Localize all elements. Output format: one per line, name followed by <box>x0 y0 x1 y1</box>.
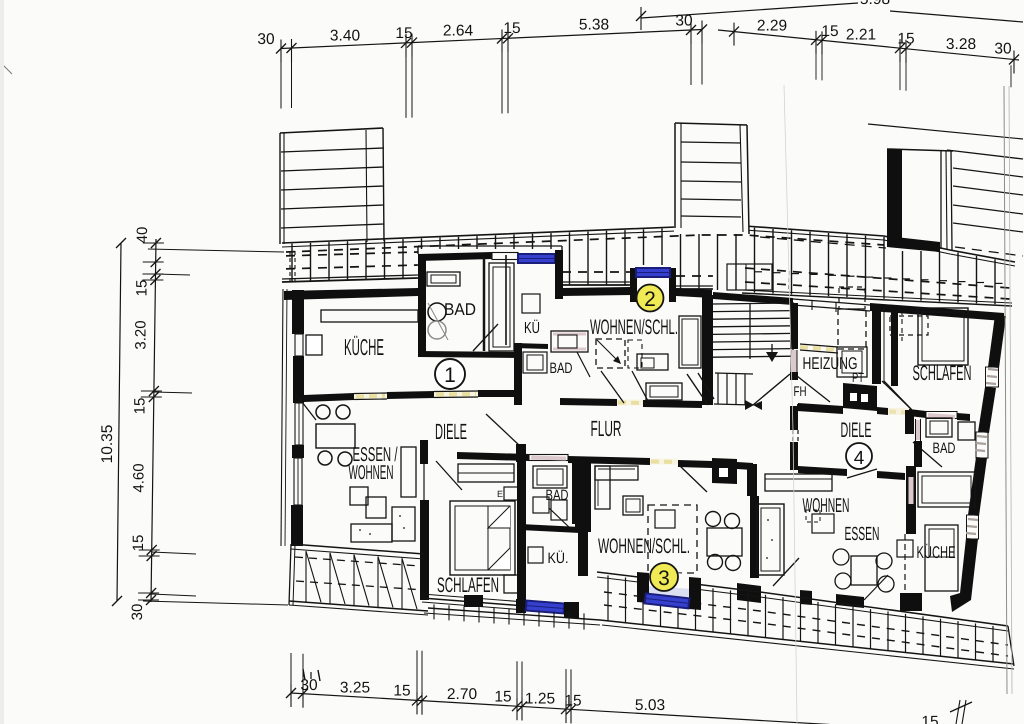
svg-text:KÜ: KÜ <box>524 319 540 337</box>
svg-text:40: 40 <box>134 227 151 244</box>
svg-text:1.25: 1.25 <box>525 691 555 708</box>
svg-text:4.60: 4.60 <box>131 463 148 492</box>
svg-text:WOHNEN/SCHL.: WOHNEN/SCHL. <box>598 535 690 558</box>
svg-text:WOHNEN: WOHNEN <box>349 462 394 484</box>
svg-text:30: 30 <box>994 40 1012 57</box>
svg-text:15: 15 <box>130 535 147 552</box>
svg-text:2: 2 <box>644 288 656 311</box>
svg-text:3.28: 3.28 <box>946 36 976 53</box>
svg-text:5.03: 5.03 <box>635 697 665 714</box>
svg-text:15: 15 <box>395 25 412 42</box>
svg-text:HEIZUNG: HEIZUNG <box>803 354 858 373</box>
svg-text:30: 30 <box>129 604 146 621</box>
svg-text:FLUR: FLUR <box>591 416 622 441</box>
svg-text:BAD: BAD <box>444 300 476 319</box>
svg-text:30: 30 <box>257 31 275 48</box>
svg-text:10.35: 10.35 <box>99 425 116 464</box>
svg-text:FH: FH <box>794 383 807 399</box>
svg-text:WOHNEN: WOHNEN <box>803 495 850 517</box>
svg-text:1: 1 <box>444 364 456 387</box>
svg-text:2.29: 2.29 <box>757 17 787 34</box>
svg-text:5.98: 5.98 <box>860 0 890 8</box>
svg-text:SCHLAFEN: SCHLAFEN <box>437 574 499 597</box>
svg-text:KÜCHE: KÜCHE <box>344 334 384 360</box>
svg-text:15: 15 <box>897 31 914 48</box>
svg-text:3: 3 <box>658 567 670 590</box>
svg-text:15: 15 <box>132 398 149 415</box>
svg-text:KÜ.: KÜ. <box>548 550 569 567</box>
svg-text:3.20: 3.20 <box>133 320 150 349</box>
svg-text:15: 15 <box>921 713 938 724</box>
svg-text:15: 15 <box>564 692 581 709</box>
svg-text:15: 15 <box>494 688 511 705</box>
svg-text:KÜCHE: KÜCHE <box>917 543 956 562</box>
svg-text:3.25: 3.25 <box>340 680 370 697</box>
svg-text:2.70: 2.70 <box>447 686 478 703</box>
svg-text:2.21: 2.21 <box>846 26 876 43</box>
svg-text:DIELE: DIELE <box>435 419 467 444</box>
svg-text:15: 15 <box>133 280 150 297</box>
svg-text:BAD: BAD <box>933 440 956 457</box>
svg-text:15: 15 <box>821 23 838 40</box>
svg-text:E: E <box>497 489 503 499</box>
svg-text:DIELE: DIELE <box>841 419 872 442</box>
svg-text:5.38: 5.38 <box>579 16 609 33</box>
svg-text:15: 15 <box>393 682 410 699</box>
svg-text:4: 4 <box>854 448 865 469</box>
svg-text:SCHLAFEN: SCHLAFEN <box>913 362 972 385</box>
svg-text:ESSEN: ESSEN <box>845 524 880 545</box>
svg-text:2.64: 2.64 <box>443 23 474 40</box>
svg-text:BAD: BAD <box>550 360 573 377</box>
svg-text:BAD: BAD <box>546 487 569 504</box>
svg-text:PT: PT <box>852 370 864 385</box>
svg-text:15: 15 <box>503 20 520 37</box>
svg-text:WOHNEN/SCHL.: WOHNEN/SCHL. <box>590 316 678 339</box>
svg-text:3.40: 3.40 <box>330 28 361 45</box>
